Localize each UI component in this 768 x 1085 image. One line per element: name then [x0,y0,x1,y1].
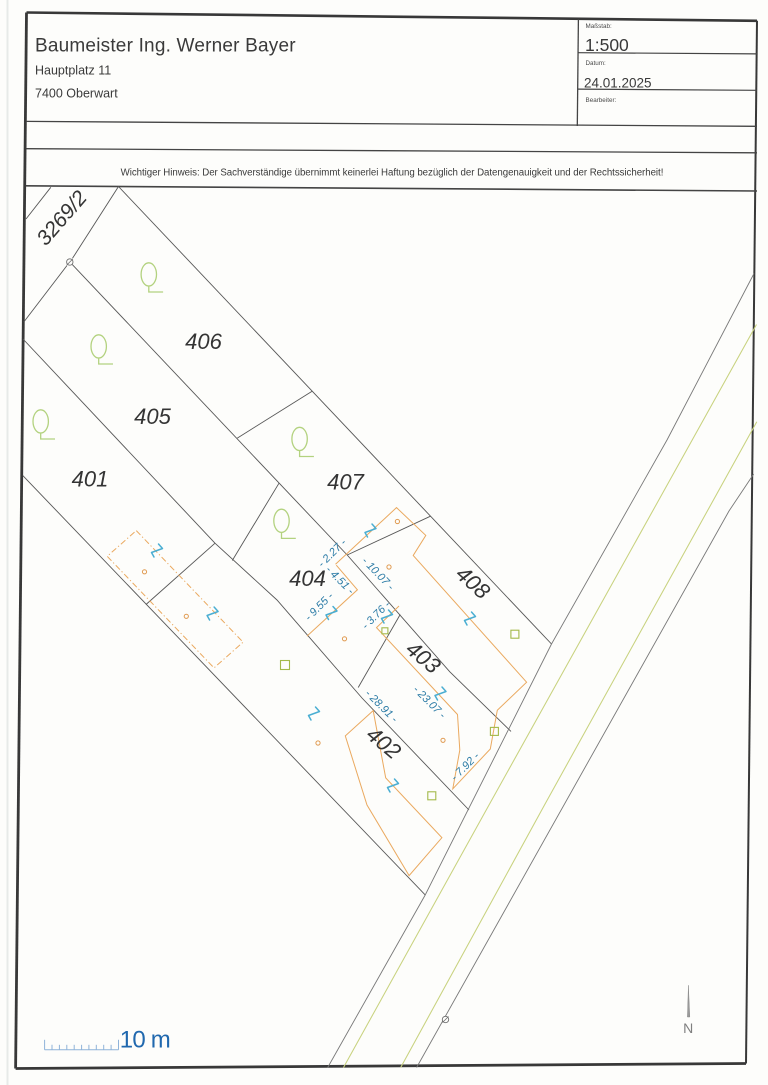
svg-text:404: 404 [289,566,326,591]
svg-text:407: 407 [327,470,364,495]
svg-text:24.01.2025: 24.01.2025 [584,76,652,91]
svg-text:Wichtiger Hinweis: Der Sachver: Wichtiger Hinweis: Der Sachverständige ü… [121,168,664,179]
svg-text:Baumeister Ing. Werner Bayer: Baumeister Ing. Werner Bayer [35,36,296,57]
svg-text:Datum:: Datum: [586,60,607,67]
svg-text:405: 405 [134,404,171,429]
svg-text:1:500: 1:500 [585,35,629,55]
svg-text:10 m: 10 m [120,1027,170,1054]
svg-text:Maßstab:: Maßstab: [586,23,612,30]
svg-text:401: 401 [72,467,109,492]
svg-text:7400 Oberwart: 7400 Oberwart [35,87,118,101]
svg-text:N: N [683,1020,693,1036]
svg-text:406: 406 [185,329,222,354]
svg-text:Bearbeiter:: Bearbeiter: [586,97,617,104]
svg-text:Hauptplatz 11: Hauptplatz 11 [35,64,111,78]
